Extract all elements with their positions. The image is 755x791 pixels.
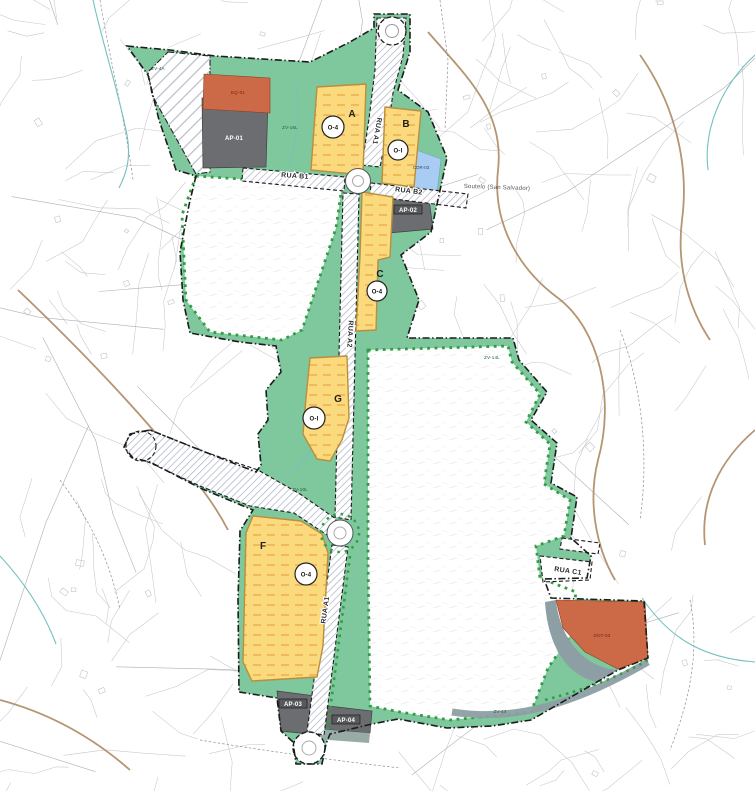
cadastral-building bbox=[125, 80, 131, 86]
cadastral-line bbox=[526, 750, 599, 786]
rural-road bbox=[640, 55, 710, 340]
code-zv10l: ZV-10L bbox=[292, 487, 308, 492]
code-zv16l: ZV-16L bbox=[282, 125, 298, 130]
cadastral-line bbox=[723, 309, 749, 379]
cadastral-building bbox=[647, 173, 657, 182]
cadastral-line bbox=[544, 20, 593, 89]
cadastral-building bbox=[123, 280, 129, 286]
cadastral-building bbox=[124, 229, 129, 233]
zoning-plan-svg: O-4 O-I O-4 O-I O-4 A B C G F AP-01 AP-0… bbox=[0, 0, 755, 791]
cadastral-line bbox=[542, 174, 632, 183]
cadastral-line bbox=[133, 253, 149, 354]
label-ap04: AP-04 bbox=[337, 718, 355, 724]
cadastral-line bbox=[529, 142, 584, 200]
cadastral-line bbox=[92, 778, 158, 791]
cadastral-building bbox=[541, 73, 546, 79]
block-letter-C: C bbox=[376, 269, 383, 280]
cadastral-line bbox=[5, 0, 57, 19]
ordinance-code-C: O-4 bbox=[372, 290, 383, 296]
cadastral-building bbox=[45, 356, 51, 362]
cadastral-line bbox=[146, 670, 253, 697]
cadastral-line bbox=[484, 729, 593, 791]
parcel-east-texture bbox=[368, 346, 576, 720]
cadastral-line bbox=[0, 292, 36, 349]
cadastral-line bbox=[10, 240, 42, 290]
cadastral-line bbox=[630, 312, 680, 343]
plan-map-canvas: O-4 O-I O-4 O-I O-4 A B C G F AP-01 AP-0… bbox=[0, 0, 755, 791]
cadastral-line bbox=[671, 735, 739, 770]
cadastral-building bbox=[552, 429, 557, 434]
cadastral-line bbox=[558, 52, 602, 78]
place-label-soutelo: Soutelo (San Salvador) bbox=[464, 184, 531, 192]
cadastral-line bbox=[628, 167, 638, 251]
cadastral-line bbox=[654, 0, 657, 3]
cadastral-line bbox=[502, 33, 510, 84]
stream bbox=[0, 556, 56, 644]
cadastral-line bbox=[525, 287, 596, 308]
cadastral-building bbox=[34, 118, 42, 127]
cadastral-line bbox=[635, 0, 665, 40]
cadastral-line bbox=[0, 56, 21, 135]
cadastral-building bbox=[478, 177, 485, 184]
cadastral-line bbox=[114, 486, 154, 593]
cadastral-line bbox=[489, 47, 510, 111]
label-ap03: AP-03 bbox=[284, 702, 302, 708]
cadastral-line bbox=[730, 597, 755, 633]
cadastral-building bbox=[478, 228, 482, 234]
block-letter-G: G bbox=[334, 394, 342, 405]
cadastral-line bbox=[626, 113, 691, 143]
cadastral-building bbox=[101, 353, 108, 359]
cadastral-line bbox=[0, 0, 51, 10]
cadastral-line bbox=[8, 31, 45, 36]
cadastral-building bbox=[500, 295, 504, 302]
cadastral-building bbox=[682, 660, 688, 667]
cadastral-line bbox=[32, 70, 83, 80]
code-zv14l: ZV-14L bbox=[484, 355, 500, 360]
cadastral-building bbox=[145, 590, 151, 597]
cadastral-line bbox=[46, 200, 108, 262]
cadastral-line bbox=[193, 684, 233, 735]
cadastral-line bbox=[92, 533, 110, 608]
roundabout-top bbox=[378, 17, 406, 45]
cadastral-line bbox=[429, 0, 495, 58]
cadastral-line bbox=[440, 0, 448, 130]
cadastral-line bbox=[578, 353, 644, 454]
cadastral-building bbox=[657, 1, 663, 5]
code-eq01: EQ-01 bbox=[231, 90, 245, 95]
cadastral-line bbox=[703, 25, 755, 38]
block-F bbox=[243, 516, 328, 681]
cadastral-line bbox=[540, 770, 564, 786]
cadastral-line bbox=[181, 542, 202, 597]
cadastral-line bbox=[59, 200, 170, 224]
cadastral-line bbox=[118, 182, 186, 270]
roundabout-south bbox=[327, 520, 353, 546]
cadastral-line bbox=[652, 219, 680, 268]
cadastral-line bbox=[536, 73, 638, 132]
cadastral-building bbox=[80, 670, 88, 678]
cadastral-line bbox=[592, 314, 673, 363]
cadastral-building bbox=[260, 32, 266, 36]
cadastral-line bbox=[91, 165, 151, 180]
cadastral-building bbox=[76, 560, 85, 567]
cadastral-building bbox=[613, 89, 620, 96]
cadastral-line bbox=[102, 588, 109, 623]
cadastral-line bbox=[456, 736, 497, 758]
cadastral-line bbox=[582, 180, 591, 232]
cadastral-building bbox=[592, 771, 599, 777]
cadastral-line bbox=[20, 478, 32, 537]
cadastral-line bbox=[611, 272, 678, 307]
cadastral-line bbox=[599, 98, 608, 160]
code-dot03: DOT-03 bbox=[594, 633, 611, 638]
cadastral-line bbox=[108, 590, 130, 643]
cadastral-line bbox=[619, 340, 620, 416]
cadastral-building bbox=[71, 588, 76, 592]
cadastral-building bbox=[54, 216, 61, 223]
code-zv44: ZV-44 bbox=[493, 709, 506, 714]
cadastral-line bbox=[0, 767, 69, 780]
cadastral-line bbox=[231, 782, 303, 791]
rural-road bbox=[0, 700, 130, 770]
cadastral-line bbox=[146, 485, 158, 603]
block-letter-A: A bbox=[348, 109, 355, 120]
cadastral-line bbox=[163, 236, 177, 351]
cadastral-building bbox=[727, 686, 731, 690]
cadastral-line bbox=[399, 752, 447, 791]
cadastral-line bbox=[440, 785, 490, 791]
cadastral-building bbox=[487, 124, 491, 129]
cadastral-building bbox=[168, 299, 175, 304]
cadastral-line bbox=[676, 366, 707, 411]
cadastral-line bbox=[64, 750, 186, 756]
culdesac-bottom bbox=[293, 732, 325, 764]
cadastral-line bbox=[620, 330, 644, 520]
cadastral-line bbox=[60, 480, 120, 610]
cadastral-line bbox=[49, 300, 68, 325]
stream bbox=[642, 598, 755, 662]
cadastral-line bbox=[675, 251, 704, 323]
cadastral-line bbox=[257, 31, 325, 50]
cadastral-line bbox=[646, 684, 656, 728]
code-zv4a: ZV-4A bbox=[151, 66, 165, 71]
cadastral-line bbox=[221, 718, 232, 791]
block-letter-F: F bbox=[260, 541, 266, 552]
label-ap02: AP-02 bbox=[399, 208, 417, 214]
cadastral-line bbox=[651, 214, 734, 287]
ordinance-code-G: O-I bbox=[310, 417, 319, 423]
cadastral-line bbox=[518, 35, 551, 51]
ordinance-code-A: O-4 bbox=[328, 126, 339, 132]
cadastral-building bbox=[440, 238, 444, 243]
label-ap01: AP-01 bbox=[225, 136, 243, 142]
rural-road bbox=[704, 430, 755, 545]
cadastral-line bbox=[660, 595, 693, 695]
cadastral-line bbox=[626, 707, 670, 784]
cadastral-line bbox=[170, 350, 243, 434]
cadastral-line bbox=[584, 751, 604, 772]
cadastral-line bbox=[102, 0, 162, 32]
cadastral-line bbox=[482, 0, 519, 41]
cadastral-line bbox=[0, 4, 45, 24]
ordinance-code-B: O-I bbox=[394, 149, 403, 155]
cadastral-building bbox=[463, 95, 470, 100]
cadastral-line bbox=[438, 44, 495, 139]
cadastral-line bbox=[0, 0, 58, 25]
cadastral-line bbox=[153, 711, 198, 739]
cadastral-line bbox=[0, 426, 89, 775]
cadastral-line bbox=[716, 286, 755, 358]
cadastral-line bbox=[57, 291, 105, 332]
label-rua-a2: RUA A2 bbox=[345, 320, 353, 348]
cadastral-line bbox=[206, 0, 248, 3]
cadastral-line bbox=[742, 66, 743, 155]
cadastral-building bbox=[60, 588, 69, 596]
cadastral-line bbox=[480, 82, 569, 123]
west-culdesac-bulb bbox=[126, 431, 156, 461]
cadastral-line bbox=[65, 261, 105, 274]
cadastral-line bbox=[51, 638, 62, 686]
cadastral-line bbox=[0, 783, 11, 791]
roundabout-b1b2 bbox=[346, 169, 371, 194]
cadastral-line bbox=[515, 0, 564, 12]
cadastral-line bbox=[671, 497, 701, 551]
cadastral-building bbox=[619, 550, 625, 557]
cadastral-line bbox=[704, 660, 739, 666]
cadastral-line bbox=[0, 709, 95, 771]
block-letter-B: B bbox=[402, 119, 409, 130]
ordinance-code-F: O-4 bbox=[301, 573, 312, 579]
stream bbox=[93, 0, 129, 188]
cadastral-line bbox=[43, 337, 136, 572]
cadastral-line bbox=[112, 613, 159, 661]
stream bbox=[707, 55, 755, 170]
cadastral-line bbox=[65, 171, 114, 180]
cadastral-building bbox=[98, 687, 105, 693]
code-cor03: COR-03 bbox=[413, 165, 430, 170]
cadastral-line bbox=[83, 690, 97, 718]
cadastral-line bbox=[516, 191, 525, 263]
